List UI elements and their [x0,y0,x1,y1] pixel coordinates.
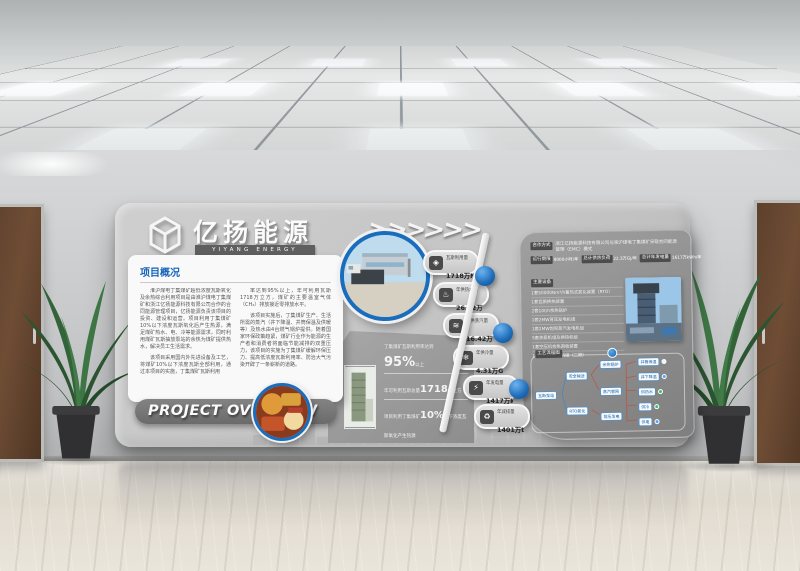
stat-label: 项目利用丁集煤矿 [384,415,420,420]
decor-sphere [475,266,495,286]
hot-water-icon: ♨ [439,288,453,302]
culture-wall-board: 亿扬能源 YIYANG ENERGY >>>>>> 丁集煤矿瓦斯利用率达到 95… [115,203,690,447]
info-panel: 合作方式 浙江亿扬能源科技有限公司与淮沪煤电丁集煤矿采取合同能源管理（EMC）模… [519,230,695,441]
info-row-cooperation: 合作方式 浙江亿扬能源科技有限公司与淮沪煤电丁集煤矿采取合同能源管理（EMC）模… [530,240,680,254]
emission-icon: ♻ [480,410,494,424]
info-label: 主要设备 [531,279,553,287]
stat-value: 10% [420,410,444,421]
hexagon-cube-logo-icon [145,215,185,255]
ceiling-shading [0,0,800,170]
overview-paragraph: 淮沪煤电丁集煤矿超低浓度瓦斯氧化及余热综合利用项目是由淮沪煤电丁集煤矿和浙江亿扬… [140,288,231,351]
factory-photo [344,235,426,317]
overview-paragraph: 率达到95%以上，年可利用瓦斯1718万立方，煤矿的主要温室气体（CH₄）排放接… [240,288,331,309]
stat-suffix: 以上 [415,363,424,368]
gas-icon: ◈ [429,256,443,270]
power-icon: ⚡ [469,381,483,395]
flow-output: 供冷 [638,402,659,411]
stat-badge: ♻ 年减排量1401万t [474,404,530,429]
stat-label: 年可利用瓦斯总量 [384,389,420,394]
overview-body: 淮沪煤电丁集煤矿超低浓度瓦斯氧化及余热综合利用项目是由淮沪煤电丁集煤矿和浙江亿扬… [140,288,331,402]
stat-value: 95% [384,355,415,370]
info-row-terms: 运行期限8000小时/年 总计供热负荷22.3万GJ/年 总计年发电量1617万… [531,254,681,265]
flow-output-label: 井下降温 [638,372,660,381]
badge-value: 1401万t [497,426,524,434]
flow-output-label: 供冷 [638,402,652,411]
flow-output: 供热水 [638,387,663,396]
info-label: 总计年发电量 [640,254,671,263]
plant-equipment-photo [625,277,682,342]
machinery-photo-circle [253,383,311,441]
info-value: 22.3万GJ/年 [613,255,637,261]
info-value: 1617万kWh/年 [672,254,702,261]
overview-paragraph: 该项目采用国内外先进设备及工艺，将煤矿10%以下浓度瓦斯全部利用，通过本项目的实… [140,355,231,376]
info-label: 运行期限 [531,256,553,264]
stat-value: 1718 [420,384,448,395]
info-label: 总计供热负荷 [581,255,612,264]
decor-sphere [493,323,513,343]
info-value: 8000小时/年 [554,256,579,262]
badge-label: 瓦斯利用量 [446,256,468,261]
ceiling [0,0,800,172]
brand-name: 亿扬能源 [193,213,313,249]
brand-name-en: YIYANG ENERGY [195,245,315,255]
flow-node: RTO氧化 [566,406,588,415]
stat-badge: ◈ 瓦斯利用量1718万Nm³ [423,250,479,275]
flow-output-dot [654,419,659,424]
badge-label: 年发电量 [486,381,504,386]
badge-label: 年减排量 [497,410,515,415]
flow-output-dot [658,389,663,394]
wall-light-glow [0,152,128,176]
overview-panel: 项目概况 淮沪煤电丁集煤矿超低浓度瓦斯氧化及余热综合利用项目是由淮沪煤电丁集煤矿… [128,255,343,402]
flow-node: 瓦斯泵站 [535,391,557,400]
flow-output: 井下降温 [638,372,667,382]
board-floor-reflection [118,464,688,528]
stat-badge: ♨ 年供热水量26.22万GJ [433,282,489,307]
badge-label: 年供冷量 [476,351,494,356]
factory-photo-circle [340,231,430,321]
overview-heading: 项目概况 [140,264,331,283]
flow-output: 供电 [638,417,659,426]
info-label: 合作方式 [530,242,552,250]
flow-node: 蒸汽管网 [600,387,622,396]
info-value: 浙江亿扬能源科技有限公司与淮沪煤电丁集煤矿采取合同能源管理（EMC）模式 [555,240,680,253]
lobby-scene: 亿扬能源 YIYANG ENERGY >>>>>> 丁集煤矿瓦斯利用率达到 95… [0,0,800,571]
flow-output-label: 供电 [638,417,652,426]
flow-output-dot [661,359,666,364]
potted-plant-left [10,266,142,466]
flow-node: 背压发电 [600,412,622,421]
process-flow: 工艺流程图 瓦斯泵站 安全输送 RTO氧化 余热锅炉 [530,353,685,434]
decor-sphere [509,379,529,399]
flow-node: 余热锅炉 [599,360,621,369]
flow-output-dot [662,374,667,379]
overview-paragraph: 该项目实施后，丁集煤矿生产、生活所需的蒸汽（井下降温、井筒保温及供暖等）及热水由… [240,313,331,369]
flow-output-label: 供热水 [638,387,656,396]
machinery-photo [256,386,308,438]
tower-photo [344,365,376,429]
flow-node: 安全输送 [566,371,588,380]
flow-output: 井筒保温 [637,357,666,367]
flow-output-label: 井筒保温 [637,357,659,366]
flow-output-dot [654,404,659,409]
